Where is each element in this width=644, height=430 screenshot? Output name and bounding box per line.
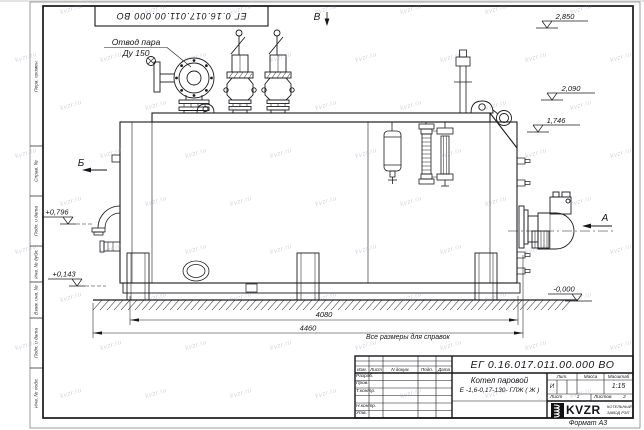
elevation-marks [42,21,595,301]
safety-valve [224,30,256,113]
base-skid [123,283,520,293]
elevation-low: 1,746 [547,116,567,125]
mass-label: Масса [577,375,604,380]
drain-fitting [246,284,257,292]
frame-cell-sign-date-1: Подп. и дата [30,196,43,246]
row-utv: Утв. [356,412,367,417]
water-level-gauge [384,122,453,186]
row-tkontr: Т.контр. [356,390,375,395]
label-leader [167,48,191,68]
steam-outlet-label-line2: Ду 150 [122,48,150,58]
view-label-a: А [601,213,609,224]
vent-pipe [454,50,472,113]
elevation-top: 2,850 [555,12,576,21]
company-name-line1: КОТЕЛЬНЫЙ [607,405,632,409]
frame-cell-inv-dupl: Инв. № дубл. [30,246,43,282]
view-label-v: В [314,12,321,23]
scale-value: 1:15 [604,383,633,390]
view-arrow-a [582,224,591,229]
elevation-ground: -0,000 [553,285,575,294]
format-label: Формат А3 [548,420,628,427]
scale-label: Масштаб [604,375,633,380]
sheets-word: Листов [594,396,611,401]
product-model: Е -1,6-0,17-130- ГЛЖ ( Ж ) [452,388,547,395]
lifting-lug-front [197,104,214,113]
kvzr-coil-logo-icon [551,403,564,418]
row-nkontr: Н.контр. [356,405,376,410]
col-data: Дата [436,368,452,373]
col-izm: Изм. [355,368,369,373]
manhole [183,261,209,281]
row-prov: Пров. [356,382,369,387]
row-razrab: Разраб. [356,375,373,380]
frame-cell-inv-orig: Инв. № подл. [30,368,43,418]
steam-outlet-label-line1: Отвод пара [112,37,161,47]
ground-hatching [93,300,571,310]
burner-assembly [519,192,574,249]
company-name-line2: ЗАВОД РЭП [607,411,629,415]
view-label-b: Б [78,158,85,169]
body-seams [132,122,490,283]
safety-valve-2 [262,30,294,113]
rear-chamfer [490,113,517,148]
boiler-body [120,122,517,283]
title-doc-number: ЕГ 0.16.017.011.00.000 ВО [452,360,633,371]
sheets-num: 2 [618,396,631,401]
company-logo-text: KVZR [566,404,601,416]
dim-overall-length: 4460 [300,324,318,333]
view-arrow-v [325,19,330,27]
drawing-sheet: 4080 4460 2,850 2,090 1,746 +0,796 +0,14… [0,0,644,430]
lit-label: Лит. [547,375,577,380]
rotated-doc-number-stamp: ЕГ 0.16.017.011.00.000 ВО [95,6,268,26]
reference-note: Все размеры для справок [366,334,450,341]
sheet-num: 1 [570,396,586,401]
elevation-ground-left: +0,143 [52,270,76,279]
burner-control-box [550,197,571,214]
flange-bolts [175,59,213,97]
steam-outlet-valve [104,48,214,114]
col-ndokum: N докум. [383,368,418,373]
product-name: Котел паровой [452,377,547,385]
frame-cell-sign-date-2: Подп. и дата [30,318,43,368]
boiler-side-view [92,30,614,310]
lit-value: И [547,384,557,390]
elevation-mid: 2,090 [561,84,582,93]
boiler-top-plate [152,113,490,122]
dim-body-length: 4080 [316,310,334,319]
burner-motor [532,231,549,248]
sheet-word: Лист [550,396,562,401]
elevation-left-upper: +0,796 [45,208,69,217]
frame-cell-primary-use: Перв. примен. [30,6,43,146]
col-list: Лист [369,368,383,373]
frame-cell-repl-inv: Взам. инв. № [30,282,43,318]
frame-cell-ref-number: Справ. № [30,146,43,196]
col-podp: Подп. [418,368,436,373]
